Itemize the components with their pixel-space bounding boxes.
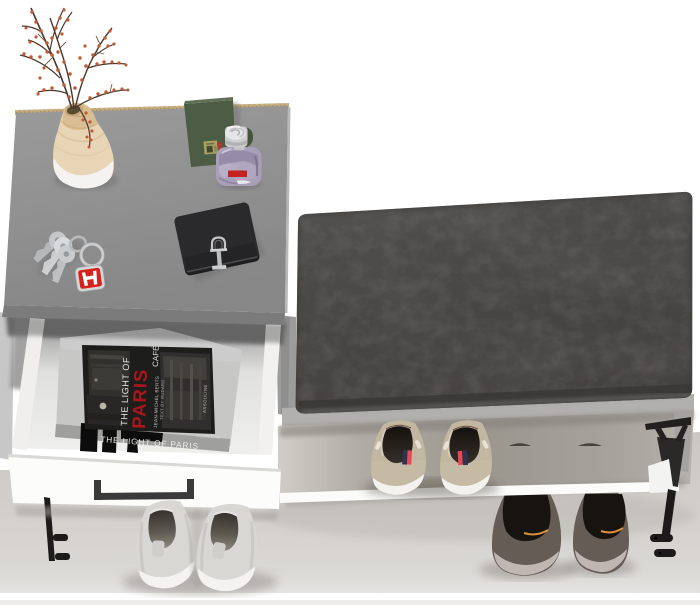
- svg-text:ASSOULINE: ASSOULINE: [202, 384, 208, 413]
- svg-text:CAFÉ: CAFÉ: [151, 345, 161, 367]
- svg-text:PARIS: PARIS: [128, 368, 151, 429]
